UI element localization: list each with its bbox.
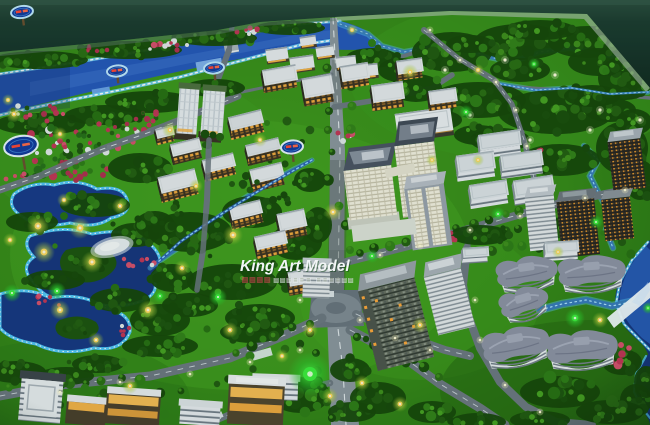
svg-text:King Art Model: King Art Model [240,258,350,275]
